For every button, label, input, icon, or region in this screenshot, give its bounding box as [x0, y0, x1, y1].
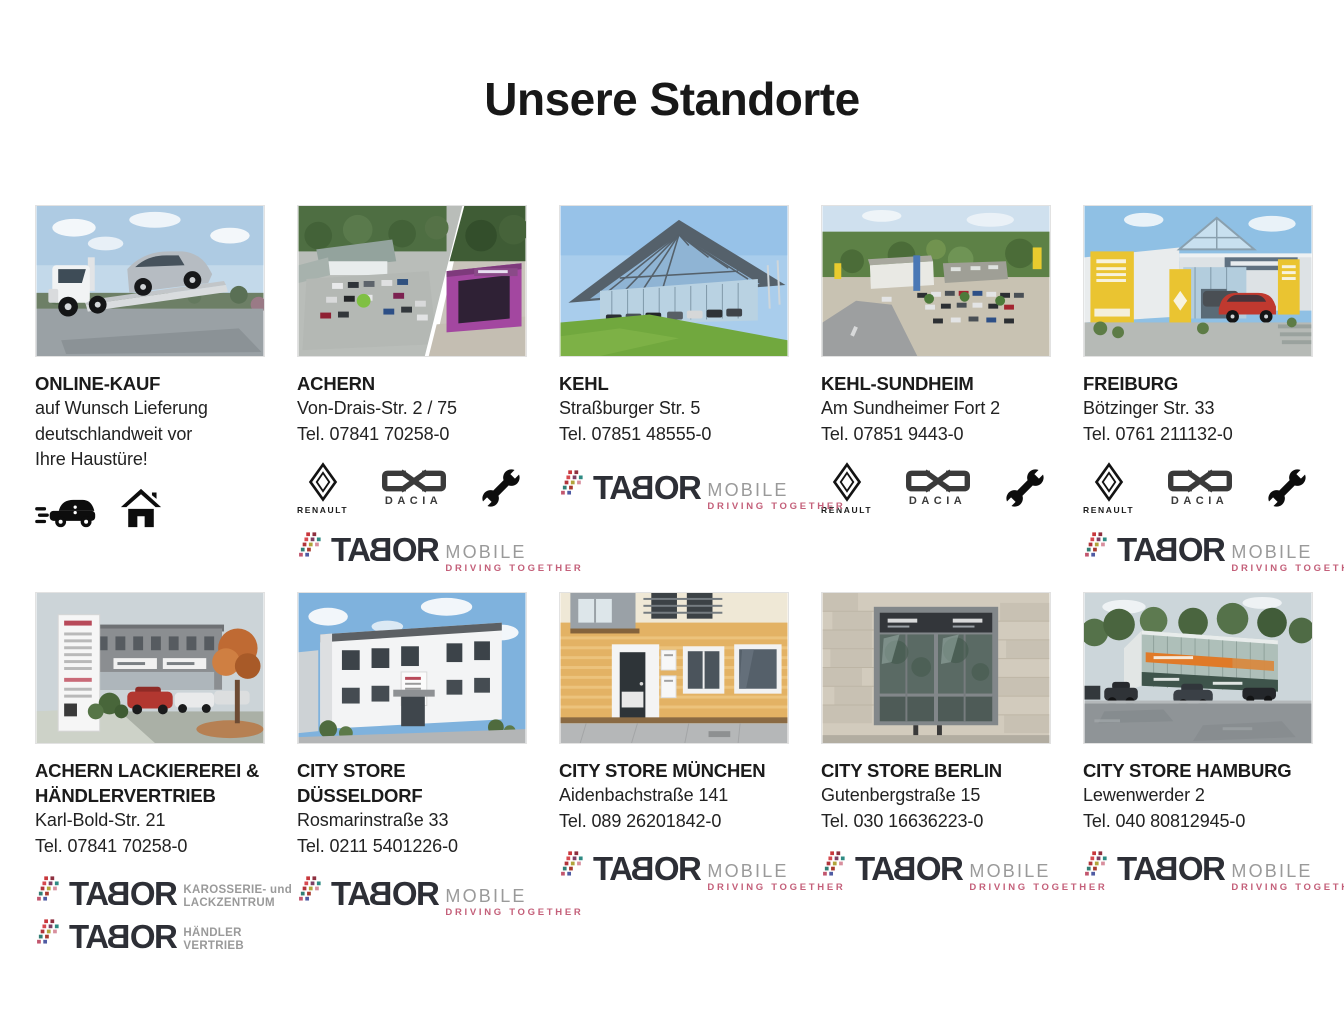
- location-address: Am Sundheimer Fort 2: [821, 396, 1051, 422]
- tabor-logo-suffix: MOBILE DRIVING TOGETHER: [445, 543, 583, 574]
- tabor-dots-icon: [297, 871, 326, 908]
- photo-muenchen-facade: [559, 592, 789, 744]
- location-card-city-store-hamburg: CITY STORE HAMBURG Lewenwerder 2 Tel. 04…: [1083, 592, 1313, 951]
- dacia-label: DACIA: [909, 495, 966, 507]
- location-name: CITY STORE BERLIN: [821, 758, 1051, 783]
- location-address: Straßburger Str. 5: [559, 396, 789, 422]
- location-card-city-store-muenchen: CITY STORE MÜNCHEN Aidenbachstraße 141 T…: [559, 592, 789, 951]
- tabor-logo: TABOR MOBILE DRIVING TOGETHER: [297, 527, 527, 564]
- tabor-dots-icon: [35, 871, 64, 908]
- dacia-logo: DACIA: [901, 469, 975, 507]
- location-name: CITY STORE HAMBURG: [1083, 758, 1313, 783]
- location-phone: Tel. 0761 211132-0: [1083, 422, 1313, 448]
- location-phone: Tel. 089 26201842-0: [559, 809, 789, 835]
- tabor-wordmark: TABOR: [855, 854, 962, 883]
- tabor-wordmark: TABOR: [331, 879, 438, 908]
- tabor-wordmark: TABOR: [1117, 854, 1224, 883]
- delivery-car-icon: [35, 489, 99, 529]
- location-name: KEHL: [559, 371, 789, 396]
- tabor-dots-icon: [35, 914, 64, 951]
- location-card-achern: ACHERN Von-Drais-Str. 2 / 75 Tel. 07841 …: [297, 205, 527, 564]
- location-desc-line: Ihre Haustüre!: [35, 447, 265, 473]
- location-address: Aidenbachstraße 141: [559, 783, 789, 809]
- tabor-logo-suffix: MOBILE DRIVING TOGETHER: [1231, 862, 1344, 893]
- dacia-link-icon: [901, 469, 975, 493]
- tabor-dots-icon: [559, 846, 588, 883]
- wrench-icon: [1265, 466, 1309, 510]
- tabor-haendlervertrieb-logo: TABOR HÄNDLER VERTRIEB: [35, 914, 265, 951]
- tabor-logo: TABOR MOBILE DRIVING TOGETHER: [297, 871, 527, 908]
- location-address: Karl-Bold-Str. 21: [35, 808, 265, 834]
- tabor-logo-suffix: MOBILE DRIVING TOGETHER: [707, 862, 845, 893]
- brand-logos-row: RENAULT DACIA: [297, 459, 523, 517]
- dacia-link-icon: [1163, 469, 1237, 493]
- photo-freiburg-entrance: [1083, 205, 1313, 357]
- location-address: Bötzinger Str. 33: [1083, 396, 1313, 422]
- location-name: CITY STORE DÜSSELDORF: [297, 758, 527, 808]
- renault-diamond-icon: [1094, 462, 1124, 502]
- location-card-online-kauf: ONLINE-KAUF auf Wunsch Lieferung deutsch…: [35, 205, 265, 564]
- tabor-logo-suffix: MOBILE DRIVING TOGETHER: [969, 862, 1107, 893]
- renault-label: RENAULT: [297, 505, 348, 515]
- location-phone: Tel. 07851 48555-0: [559, 422, 789, 448]
- tabor-mobile-logo: TABOR MOBILE DRIVING TOGETHER: [297, 871, 527, 908]
- delivery-icons-row: [35, 487, 265, 529]
- photo-berlin-storefront: [821, 592, 1051, 744]
- tabor-logo-suffix: HÄNDLER VERTRIEB: [183, 927, 244, 953]
- tabor-logo: TABOR HÄNDLER VERTRIEB: [35, 914, 265, 951]
- location-card-city-store-berlin: CITY STORE BERLIN Gutenbergstraße 15 Tel…: [821, 592, 1051, 951]
- tabor-mobile-logo: TABOR MOBILE DRIVING TOGETHER: [821, 846, 1051, 883]
- location-name: ONLINE-KAUF: [35, 371, 265, 396]
- photo-hamburg-glass-building: [1083, 592, 1313, 744]
- tabor-logo: TABOR MOBILE DRIVING TOGETHER: [821, 846, 1051, 883]
- photo-duesseldorf-building: [297, 592, 527, 744]
- tabor-mobile-logo: TABOR MOBILE DRIVING TOGETHER: [297, 527, 527, 564]
- location-name: ACHERN LACKIEREREI & HÄNDLERVERTRIEB: [35, 758, 265, 808]
- tabor-wordmark: TABOR: [1117, 535, 1224, 564]
- location-phone: Tel. 040 80812945-0: [1083, 809, 1313, 835]
- location-card-city-store-duesseldorf: CITY STORE DÜSSELDORF Rosmarinstraße 33 …: [297, 592, 527, 951]
- tabor-logo: TABOR MOBILE DRIVING TOGETHER: [1083, 527, 1313, 564]
- tabor-mobile-logo: TABOR MOBILE DRIVING TOGETHER: [559, 465, 789, 502]
- location-name: KEHL-SUNDHEIM: [821, 371, 1051, 396]
- location-address: Gutenbergstraße 15: [821, 783, 1051, 809]
- brand-logos-row: RENAULT DACIA: [1083, 459, 1309, 517]
- photo-kehl-showroom: [559, 205, 789, 357]
- tabor-mobile-logo: TABOR MOBILE DRIVING TOGETHER: [559, 846, 789, 883]
- location-desc-line: deutschlandweit vor: [35, 422, 265, 448]
- wrench-icon: [479, 466, 523, 510]
- tabor-logo-suffix: MOBILE DRIVING TOGETHER: [1231, 543, 1344, 574]
- tabor-dots-icon: [559, 465, 588, 502]
- dacia-logo: DACIA: [1163, 469, 1237, 507]
- locations-row-1: ONLINE-KAUF auf Wunsch Lieferung deutsch…: [35, 205, 1313, 564]
- tabor-wordmark: TABOR: [69, 879, 176, 908]
- tabor-mobile-logo: TABOR MOBILE DRIVING TOGETHER: [1083, 527, 1313, 564]
- photo-achern-lackiererei-building: [35, 592, 265, 744]
- tabor-wordmark: TABOR: [593, 473, 700, 502]
- location-phone: Tel. 030 16636223-0: [821, 809, 1051, 835]
- dacia-logo: DACIA: [377, 469, 451, 507]
- photo-achern-aerial: [297, 205, 527, 357]
- location-name: FREIBURG: [1083, 371, 1313, 396]
- location-phone: Tel. 0211 5401226-0: [297, 834, 527, 860]
- location-card-freiburg: FREIBURG Bötzinger Str. 33 Tel. 0761 211…: [1083, 205, 1313, 564]
- location-desc-line: auf Wunsch Lieferung: [35, 396, 265, 422]
- brand-logos-row: RENAULT DACIA: [821, 459, 1047, 517]
- renault-logo: RENAULT: [1083, 462, 1134, 515]
- wrench-icon: [1003, 466, 1047, 510]
- tabor-mobile-logo: TABOR MOBILE DRIVING TOGETHER: [1083, 846, 1313, 883]
- location-address: Lewenwerder 2: [1083, 783, 1313, 809]
- tabor-logo-suffix: MOBILE DRIVING TOGETHER: [707, 481, 845, 512]
- renault-label: RENAULT: [1083, 505, 1134, 515]
- tabor-logo-suffix: KAROSSERIE- und LACKZENTRUM: [183, 884, 292, 910]
- dacia-label: DACIA: [1171, 495, 1228, 507]
- tabor-wordmark: TABOR: [331, 535, 438, 564]
- tabor-dots-icon: [1083, 527, 1112, 564]
- tabor-wordmark: TABOR: [69, 922, 176, 951]
- location-phone: Tel. 07841 70258-0: [297, 422, 527, 448]
- tabor-logo-suffix: MOBILE DRIVING TOGETHER: [445, 887, 583, 918]
- location-name: ACHERN: [297, 371, 527, 396]
- location-address: Rosmarinstraße 33: [297, 808, 527, 834]
- renault-diamond-icon: [308, 462, 338, 502]
- location-name: CITY STORE MÜNCHEN: [559, 758, 789, 783]
- renault-logo: RENAULT: [297, 462, 348, 515]
- photo-kehl-sundheim-aerial: [821, 205, 1051, 357]
- tabor-dots-icon: [297, 527, 326, 564]
- house-icon: [119, 487, 163, 529]
- location-card-kehl: KEHL Straßburger Str. 5 Tel. 07851 48555…: [559, 205, 789, 564]
- location-card-achern-lackiererei: ACHERN LACKIEREREI & HÄNDLERVERTRIEB Kar…: [35, 592, 265, 951]
- tabor-logo: TABOR MOBILE DRIVING TOGETHER: [559, 846, 789, 883]
- locations-row-2: ACHERN LACKIEREREI & HÄNDLERVERTRIEB Kar…: [35, 592, 1313, 951]
- photo-online-kauf-tow-truck: [35, 205, 265, 357]
- location-card-kehl-sundheim: KEHL-SUNDHEIM Am Sundheimer Fort 2 Tel. …: [821, 205, 1051, 564]
- tabor-karosserie-logo: TABOR KAROSSERIE- und LACKZENTRUM: [35, 871, 265, 908]
- dacia-label: DACIA: [385, 495, 442, 507]
- location-phone: Tel. 07841 70258-0: [35, 834, 265, 860]
- location-address: Von-Drais-Str. 2 / 75: [297, 396, 527, 422]
- tabor-logo: TABOR KAROSSERIE- und LACKZENTRUM: [35, 871, 265, 908]
- dacia-link-icon: [377, 469, 451, 493]
- location-phone: Tel. 07851 9443-0: [821, 422, 1051, 448]
- tabor-wordmark: TABOR: [593, 854, 700, 883]
- page-title: Unsere Standorte: [0, 0, 1344, 126]
- tabor-logo: TABOR MOBILE DRIVING TOGETHER: [559, 465, 789, 502]
- tabor-logo: TABOR MOBILE DRIVING TOGETHER: [1083, 846, 1313, 883]
